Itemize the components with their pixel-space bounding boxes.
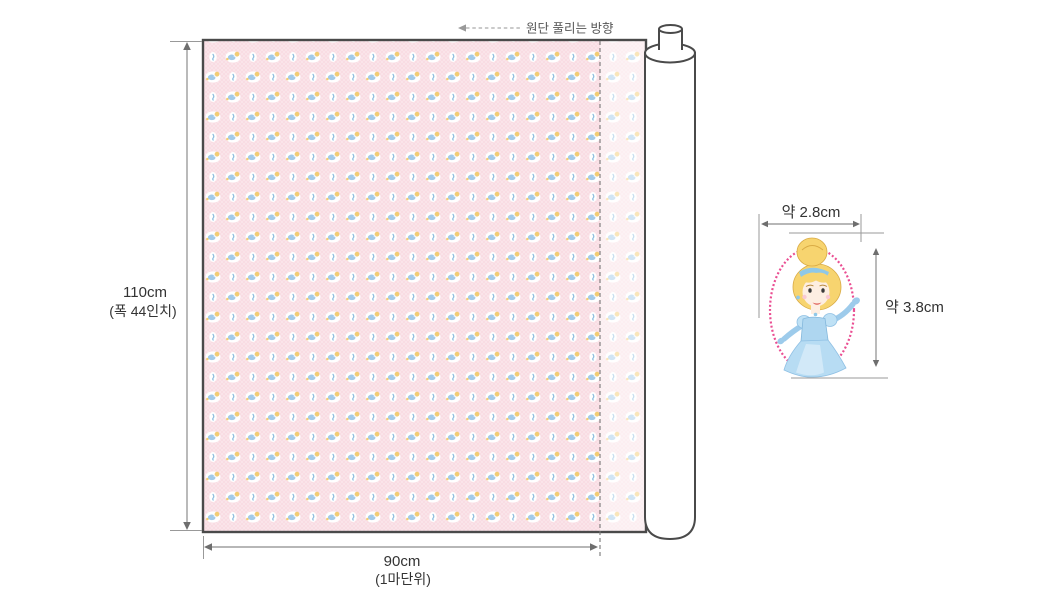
bodice xyxy=(801,317,828,343)
motif-height-label: 약 3.8cm xyxy=(885,299,944,316)
arrow-right-icon xyxy=(853,221,860,227)
arrow-down-icon xyxy=(873,360,879,367)
fabric-roll xyxy=(645,25,695,539)
unroll-direction-annotation: 원단 풀리는 방향 xyxy=(458,22,614,36)
fabric-dimension-diagram: 원단 풀리는 방향 110cm (폭 44인치) 90cm ( xyxy=(0,0,1050,615)
roll-body xyxy=(645,53,695,539)
rolled-section-fade xyxy=(600,41,645,531)
unroll-direction-label: 원단 풀리는 방향 xyxy=(526,22,614,36)
arrow-left-icon xyxy=(761,221,768,227)
arrow-down-icon xyxy=(183,522,191,530)
fabric-length-label: 90cm xyxy=(384,553,421,570)
fabric-pattern-area xyxy=(203,40,646,532)
necklace xyxy=(814,313,818,317)
fabric-width-sublabel: (폭 44인치) xyxy=(109,303,176,319)
diagram-canvas: 원단 풀리는 방향 110cm (폭 44인치) 90cm ( xyxy=(0,0,1050,615)
arrow-up-icon xyxy=(183,42,191,50)
roll-core xyxy=(659,25,682,50)
fabric-sheet xyxy=(203,40,646,559)
hair-bun xyxy=(797,238,827,266)
motif-width-label: 약 2.8cm xyxy=(782,204,841,221)
width-dimension: 110cm (폭 44인치) xyxy=(109,42,202,531)
earring xyxy=(796,296,800,300)
arrow-left-icon xyxy=(204,543,212,551)
fabric-width-label: 110cm xyxy=(123,284,167,301)
length-dimension: 90cm (1마단위) xyxy=(204,536,599,587)
fabric-length-sublabel: (1마단위) xyxy=(375,571,431,587)
arrow-right-icon xyxy=(590,543,598,551)
motif-detail-figure: 약 2.8cm 약 3.8cm xyxy=(759,204,944,378)
eye-left xyxy=(808,288,811,293)
left-arrow-icon xyxy=(458,24,466,31)
arrow-up-icon xyxy=(873,248,879,255)
eye-right xyxy=(821,288,824,293)
